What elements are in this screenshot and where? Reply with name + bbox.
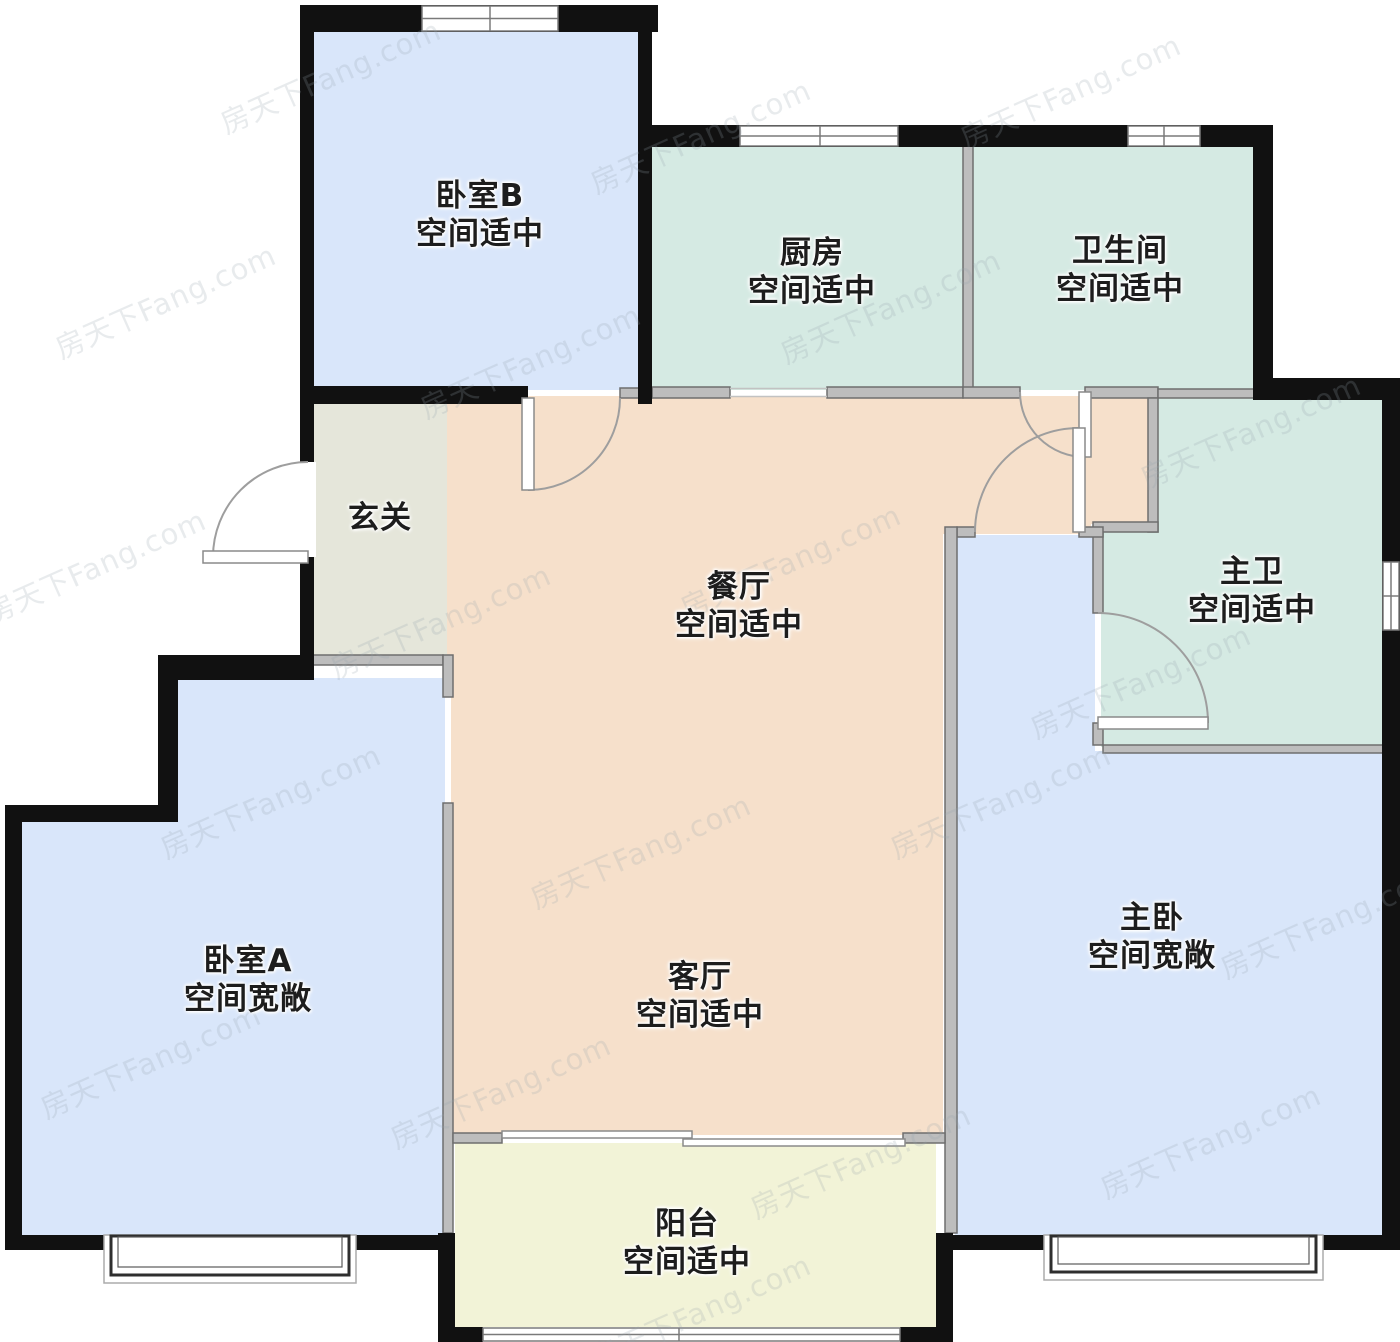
room-label-bedroom-a: 卧室A 空间宽敞 (184, 942, 312, 1018)
room-status: 空间适中 (748, 272, 876, 310)
room-name: 卫生间 (1056, 232, 1184, 270)
room-status: 空间适中 (675, 606, 803, 644)
room-name: 卧室B (416, 177, 544, 215)
room-label-bathroom: 卫生间 空间适中 (1056, 232, 1184, 308)
room-name: 卧室A (184, 942, 312, 980)
room-status: 空间宽敞 (184, 980, 312, 1018)
floor-plan: 卧室B 空间适中 厨房 空间适中 卫生间 空间适中 玄关 餐厅 空间适中 主卫 … (0, 0, 1400, 1342)
room-status: 空间宽敞 (1088, 937, 1216, 975)
room-label-dining: 餐厅 空间适中 (675, 568, 803, 644)
window-master-bath (1383, 562, 1399, 630)
bay-window-bedroom-a (104, 1235, 356, 1283)
room-label-bedroom-b: 卧室B 空间适中 (416, 177, 544, 253)
room-name: 玄关 (348, 499, 412, 537)
room-name: 主卫 (1188, 553, 1316, 591)
room-status: 空间适中 (1056, 270, 1184, 308)
room-label-master-bath: 主卫 空间适中 (1188, 553, 1316, 629)
room-status: 空间适中 (623, 1243, 751, 1281)
room-name: 厨房 (748, 234, 876, 272)
room-label-living: 客厅 空间适中 (636, 958, 764, 1034)
floor-plan-svg (0, 0, 1400, 1342)
room-status: 空间适中 (1188, 591, 1316, 629)
bay-window-master-bedroom (1044, 1235, 1323, 1280)
room-name: 阳台 (623, 1205, 751, 1243)
room-label-balcony: 阳台 空间适中 (623, 1205, 751, 1281)
room-name: 客厅 (636, 958, 764, 996)
window-bedroom-b (422, 6, 558, 31)
window-balcony (483, 1328, 900, 1341)
room-label-master-bedroom: 主卧 空间宽敞 (1088, 899, 1216, 975)
room-status: 空间适中 (636, 996, 764, 1034)
window-kitchen (740, 126, 898, 146)
room-status: 空间适中 (416, 215, 544, 253)
window-bathroom (1128, 126, 1200, 146)
room-label-hallway: 玄关 (348, 499, 412, 537)
room-label-kitchen: 厨房 空间适中 (748, 234, 876, 310)
room-name: 餐厅 (675, 568, 803, 606)
room-name: 主卧 (1088, 899, 1216, 937)
